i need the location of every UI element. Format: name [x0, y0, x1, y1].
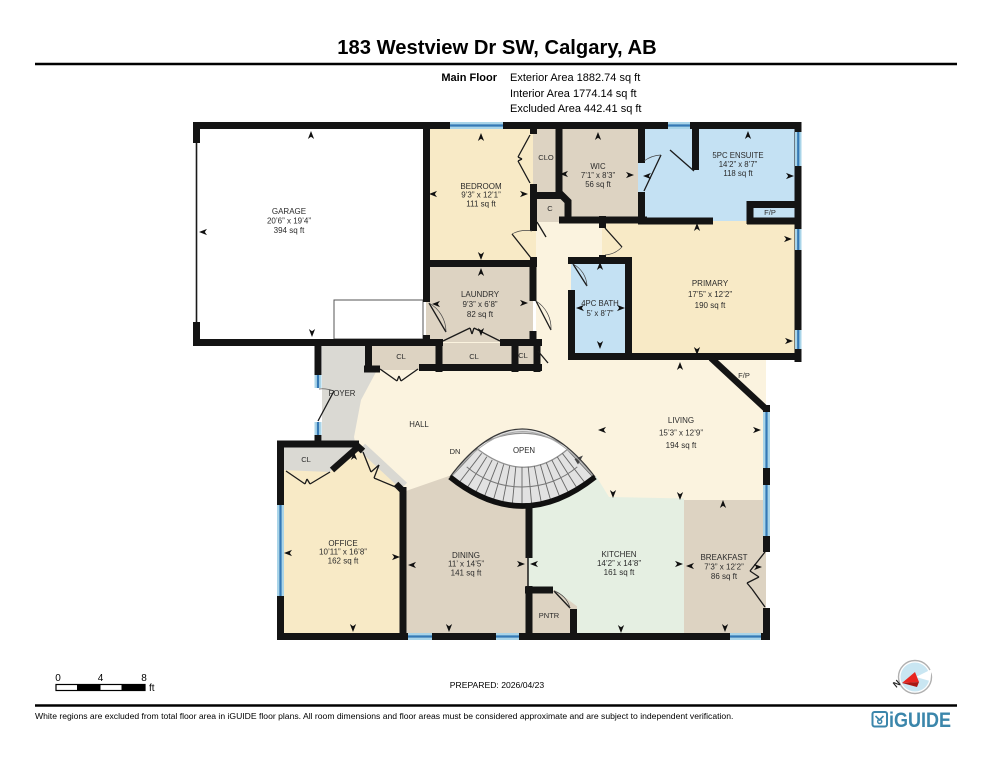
- svg-text:14’2” x 14’8”: 14’2” x 14’8”: [597, 559, 641, 568]
- svg-text:BEDROOM: BEDROOM: [460, 182, 502, 191]
- svg-text:CL: CL: [301, 455, 311, 464]
- svg-text:4: 4: [98, 673, 104, 684]
- svg-text:WIC: WIC: [590, 162, 606, 171]
- svg-text:0: 0: [55, 673, 61, 684]
- svg-text:7’1” x 8’3”: 7’1” x 8’3”: [581, 171, 616, 180]
- svg-text:HALL: HALL: [409, 420, 429, 429]
- svg-text:14’2” x 8’7”: 14’2” x 8’7”: [719, 160, 758, 169]
- svg-text:Excluded Area 442.41 sq ft: Excluded Area 442.41 sq ft: [510, 103, 641, 115]
- svg-text:111 sq ft: 111 sq ft: [466, 199, 496, 208]
- svg-text:9’3” x 6’8”: 9’3” x 6’8”: [462, 300, 497, 309]
- svg-text:15’3” x 12’9”: 15’3” x 12’9”: [659, 429, 703, 438]
- svg-text:194 sq ft: 194 sq ft: [666, 441, 697, 450]
- svg-text:118 sq ft: 118 sq ft: [723, 169, 753, 178]
- svg-text:11’ x 14’5”: 11’ x 14’5”: [448, 560, 484, 569]
- svg-text:White regions are excluded fro: White regions are excluded from total fl…: [35, 711, 733, 721]
- svg-text:82 sq ft: 82 sq ft: [467, 310, 494, 319]
- svg-text:9’3” x 12’1”: 9’3” x 12’1”: [461, 191, 501, 200]
- svg-text:17’5” x 12’2”: 17’5” x 12’2”: [688, 290, 732, 299]
- svg-text:162 sq ft: 162 sq ft: [328, 556, 359, 565]
- svg-text:183 Westview Dr SW, Calgary, A: 183 Westview Dr SW, Calgary, AB: [337, 37, 656, 59]
- svg-text:190 sq ft: 190 sq ft: [695, 301, 726, 310]
- svg-text:DN: DN: [450, 447, 461, 456]
- svg-text:7’3” x 12’2”: 7’3” x 12’2”: [704, 563, 744, 572]
- svg-text:F/P: F/P: [738, 371, 750, 380]
- svg-text:CL: CL: [518, 351, 528, 360]
- svg-text:86 sq ft: 86 sq ft: [711, 572, 738, 581]
- svg-text:5PC ENSUITE: 5PC ENSUITE: [712, 151, 763, 160]
- svg-text:CL: CL: [469, 352, 479, 361]
- svg-text:OPEN: OPEN: [513, 446, 535, 455]
- svg-text:iGUIDE: iGUIDE: [889, 709, 951, 732]
- svg-text:BREAKFAST: BREAKFAST: [700, 553, 747, 562]
- svg-text:PREPARED: 2026/04/23: PREPARED: 2026/04/23: [450, 680, 545, 690]
- svg-text:PRIMARY: PRIMARY: [692, 279, 729, 288]
- svg-text:394 sq ft: 394 sq ft: [274, 226, 305, 235]
- svg-text:161 sq ft: 161 sq ft: [604, 568, 635, 577]
- svg-text:GARAGE: GARAGE: [272, 207, 306, 216]
- svg-text:LAUNDRY: LAUNDRY: [461, 290, 500, 299]
- svg-text:4PC BATH: 4PC BATH: [581, 299, 619, 308]
- svg-text:OFFICE: OFFICE: [328, 539, 357, 548]
- svg-text:10’11” x 16’8”: 10’11” x 16’8”: [319, 548, 367, 557]
- svg-text:Interior Area 1774.14 sq ft: Interior Area 1774.14 sq ft: [510, 88, 637, 100]
- svg-text:CLO: CLO: [538, 153, 554, 162]
- svg-text:LIVING: LIVING: [668, 416, 694, 425]
- svg-text:DINING: DINING: [452, 551, 480, 560]
- svg-text:5’ x 8’7”: 5’ x 8’7”: [586, 309, 613, 318]
- svg-text:PNTR: PNTR: [539, 611, 560, 620]
- svg-text:CL: CL: [396, 352, 406, 361]
- svg-text:C: C: [547, 204, 553, 213]
- svg-text:ft: ft: [149, 683, 155, 694]
- svg-text:FOYER: FOYER: [329, 389, 356, 398]
- svg-text:KITCHEN: KITCHEN: [601, 550, 636, 559]
- svg-text:F/P: F/P: [764, 208, 776, 217]
- svg-text:56 sq ft: 56 sq ft: [585, 180, 611, 189]
- svg-text:Main Floor: Main Floor: [441, 72, 497, 84]
- svg-text:8: 8: [141, 673, 147, 684]
- svg-text:141 sq ft: 141 sq ft: [451, 568, 482, 577]
- svg-text:Exterior Area 1882.74 sq ft: Exterior Area 1882.74 sq ft: [510, 72, 640, 84]
- svg-text:20’6” x 19’4”: 20’6” x 19’4”: [267, 217, 311, 226]
